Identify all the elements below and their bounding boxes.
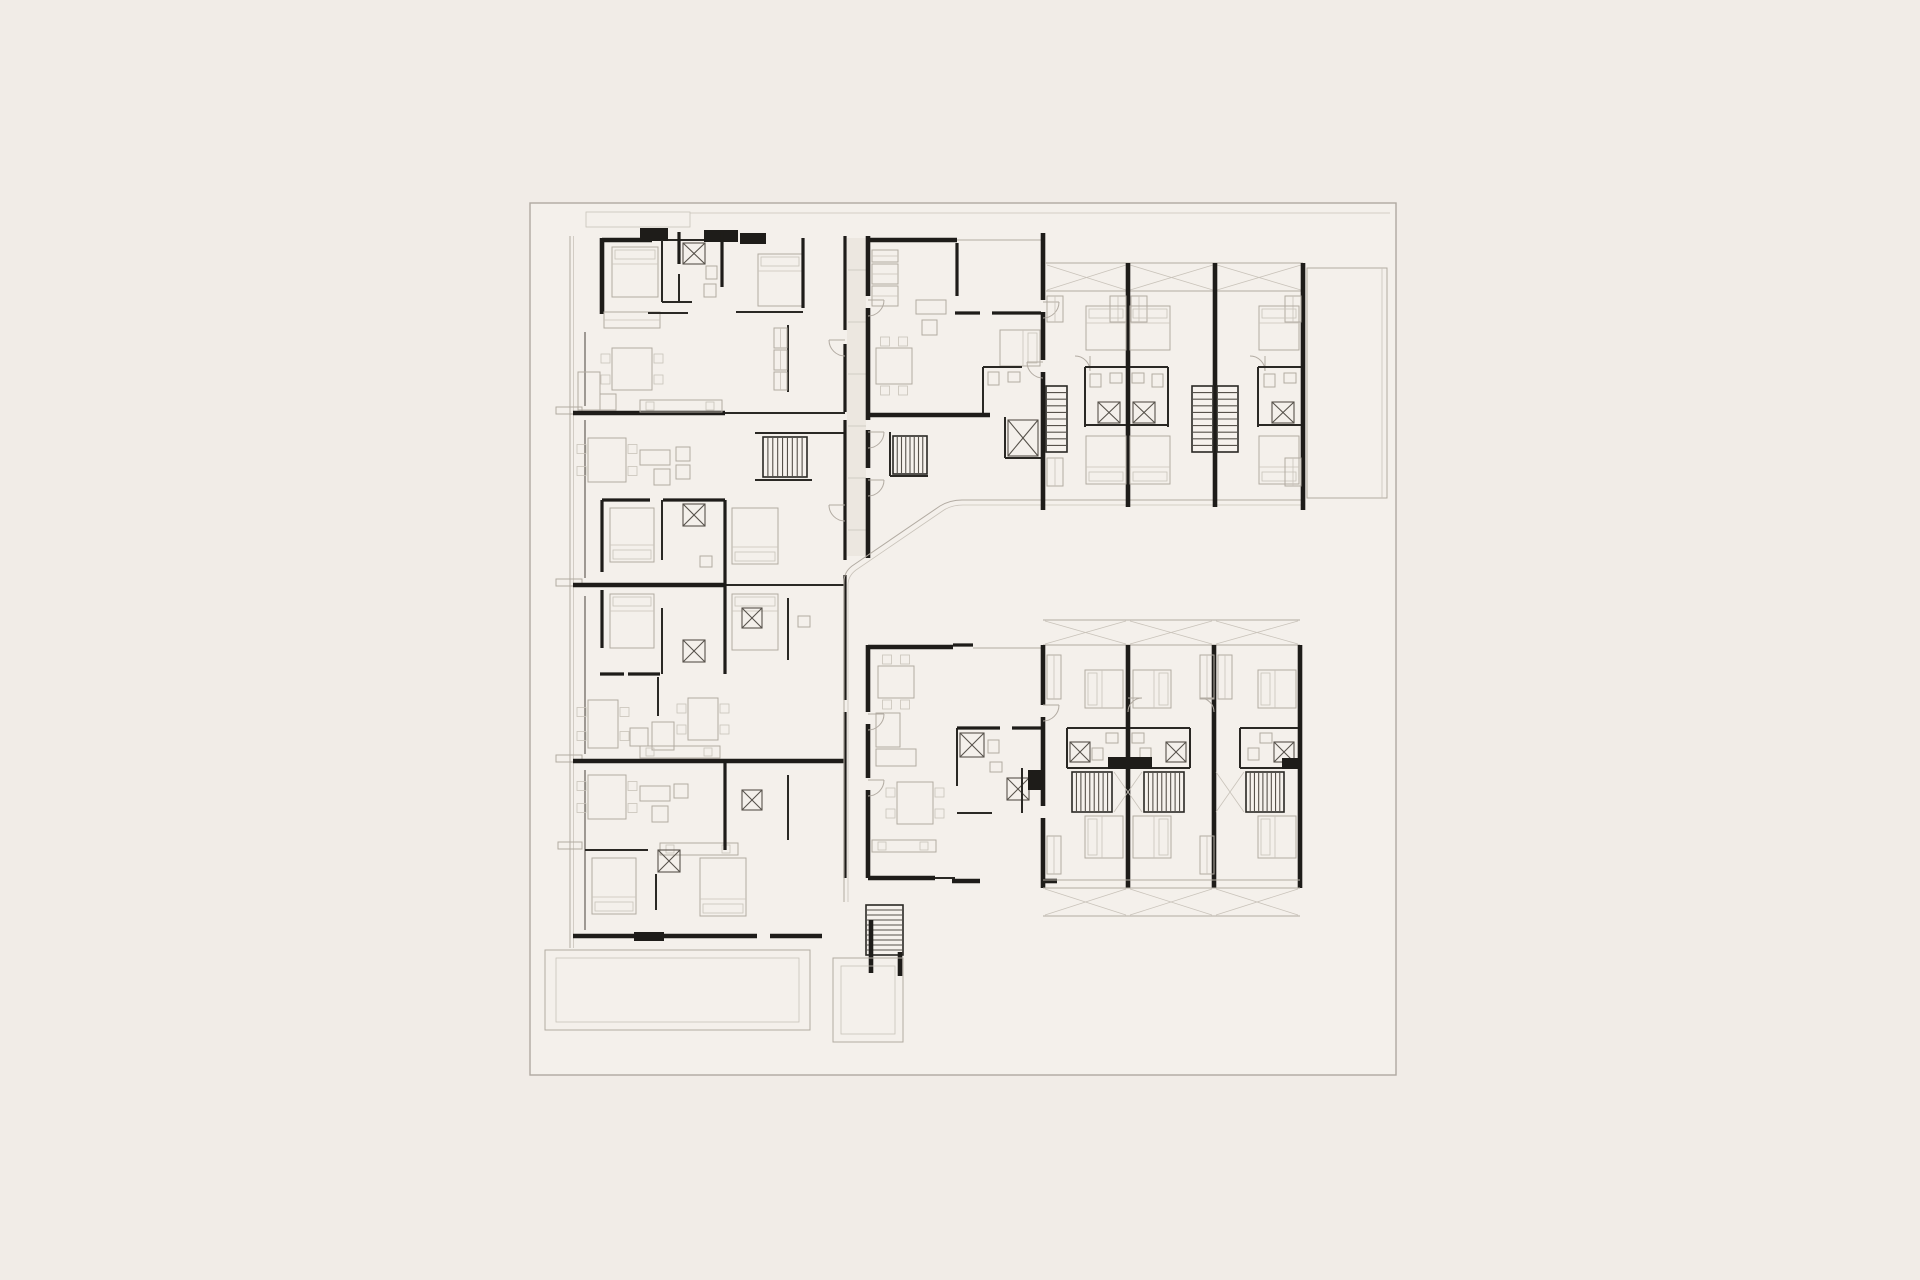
wall-poche [1130,757,1152,769]
wall-poche [1028,770,1042,790]
staircase [1144,772,1184,812]
staircase [1246,772,1284,812]
wall-poche [740,233,766,244]
wall-poche [1108,757,1128,769]
page-background [0,0,1920,1280]
staircase [763,437,807,477]
plan-element [847,238,866,556]
floor-plan-drawing [0,0,1920,1280]
wall-poche [634,932,664,941]
staircase [1072,772,1112,812]
wall-poche [640,228,668,241]
drawing-sheet [530,203,1396,1075]
wall-poche [1282,758,1300,769]
